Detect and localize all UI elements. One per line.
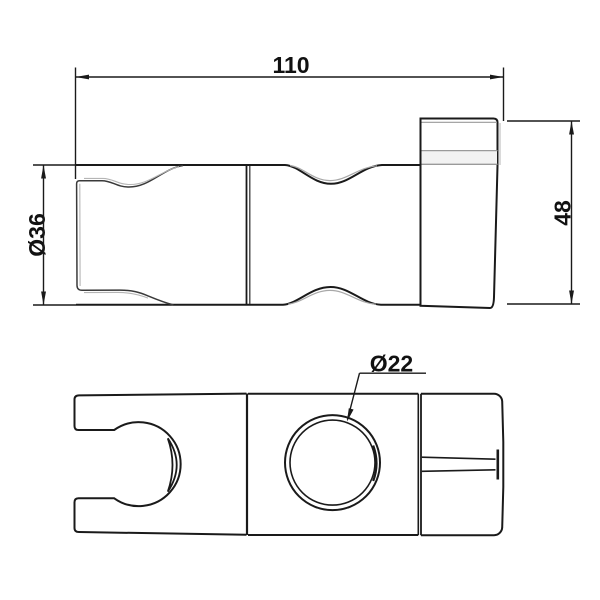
svg-text:110: 110 [272, 52, 309, 78]
svg-text:Ø36: Ø36 [24, 213, 50, 256]
